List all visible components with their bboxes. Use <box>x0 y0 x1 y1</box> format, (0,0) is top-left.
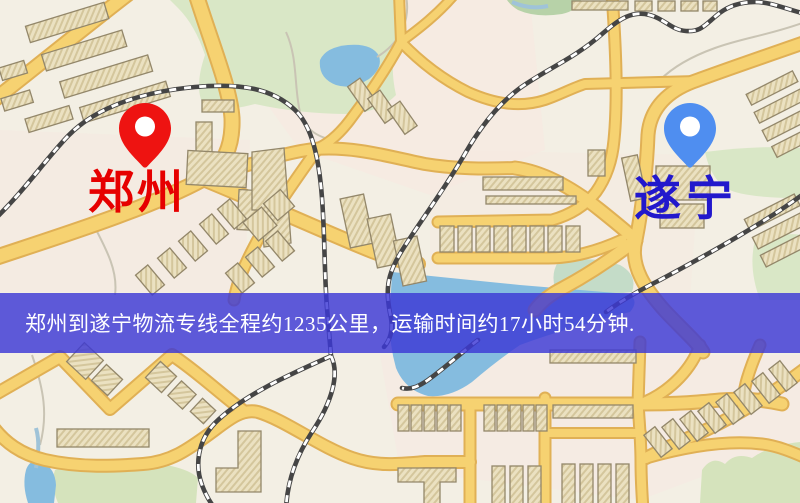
route-banner-text: 郑州到遂宁物流专线全程约1235公里，运输时间约17小时54分钟. <box>25 308 635 338</box>
destination-pin-icon[interactable] <box>663 102 717 168</box>
origin-city-label: 郑州 <box>88 170 186 216</box>
map-view: 郑州 遂宁 郑州到遂宁物流专线全程约1235公里，运输时间约17小时54分钟. <box>0 0 800 503</box>
origin-pin-icon[interactable] <box>118 102 172 168</box>
route-banner: 郑州到遂宁物流专线全程约1235公里，运输时间约17小时54分钟. <box>0 293 800 353</box>
destination-city-label: 遂宁 <box>634 177 738 224</box>
map-canvas <box>0 0 800 503</box>
